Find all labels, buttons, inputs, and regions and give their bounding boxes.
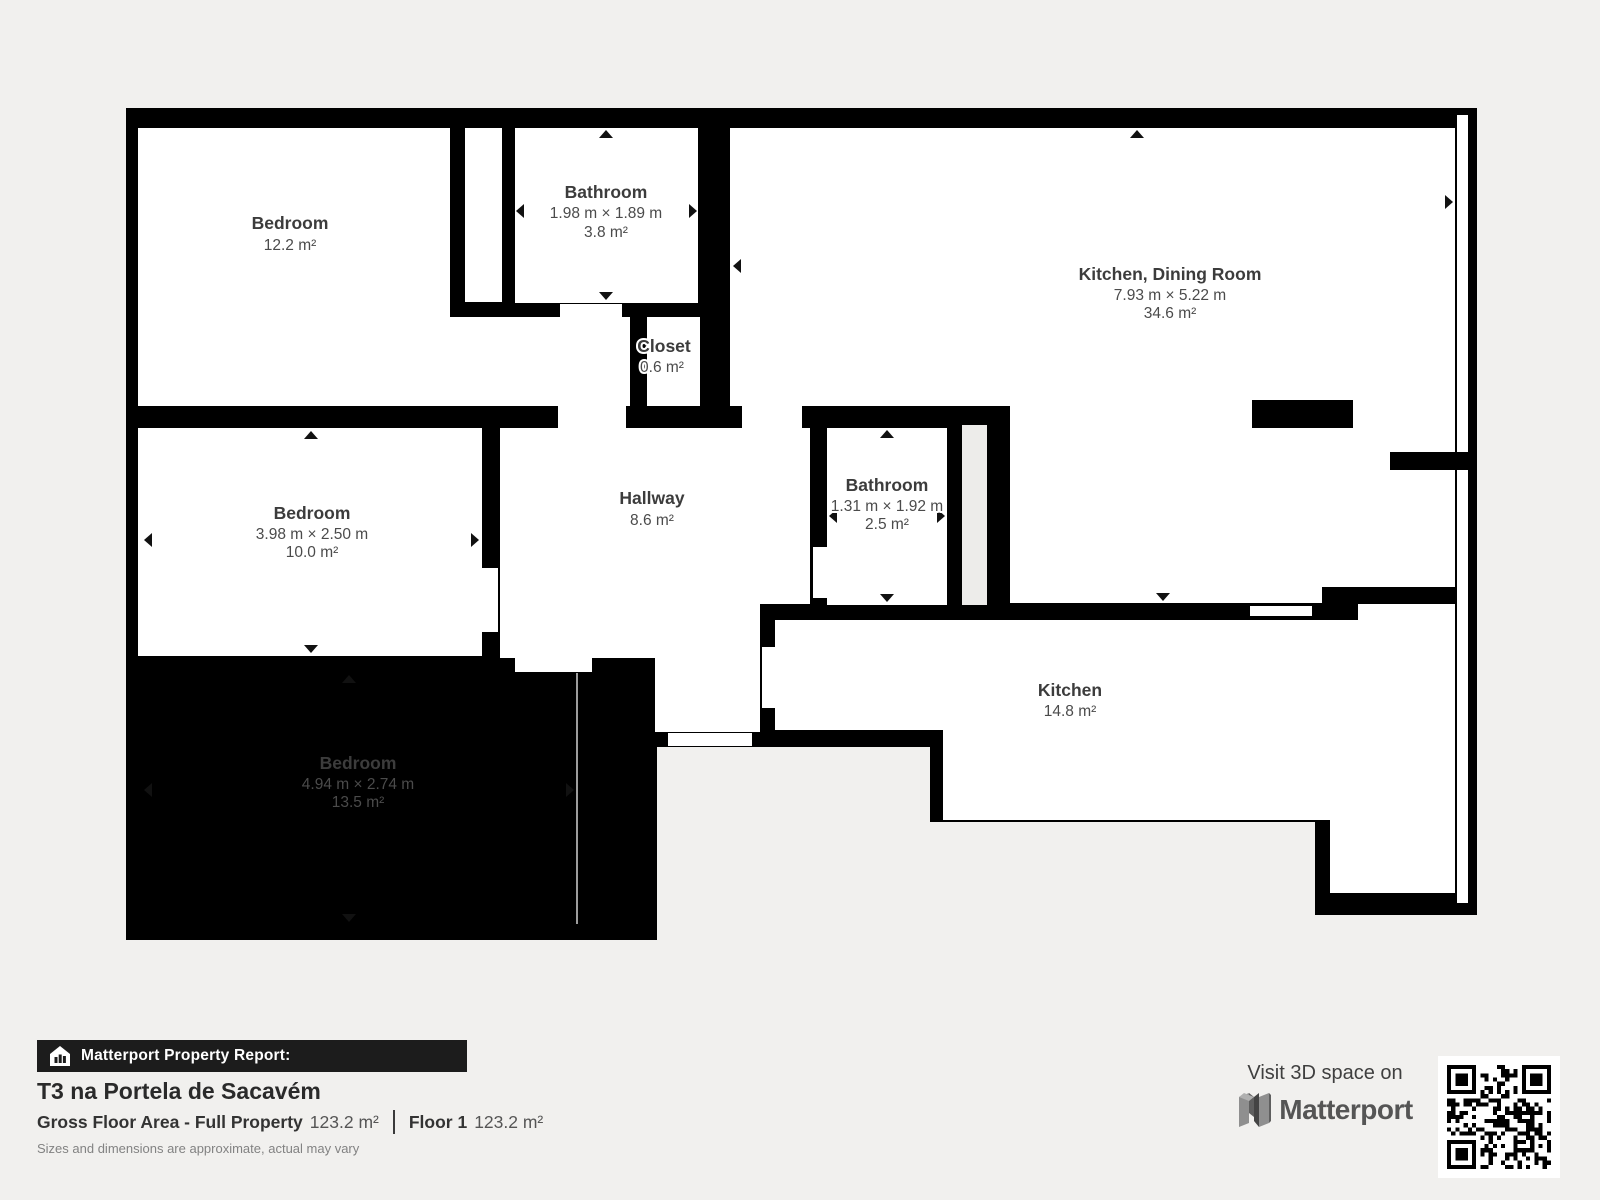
property-title: T3 na Portela de Sacavém [37,1078,321,1105]
qr-code [1438,1056,1560,1178]
window-right-upper [1457,115,1468,452]
room-dims: 3.98 m × 2.50 m [256,526,368,543]
matterport-logo-icon [1237,1091,1271,1129]
gfa-value: 123.2 m² [310,1112,379,1133]
room-label: Kitchen [1038,680,1102,700]
room-kitchen [775,604,1455,893]
shaft [962,425,987,605]
room-dims: 4.94 m × 2.74 m [302,776,414,793]
room-dims: 7.93 m × 5.22 m [1114,287,1226,304]
room-area: 12.2 m² [264,237,317,254]
matterport-wordmark: Matterport [1279,1094,1412,1126]
door-hallway-dining [742,406,802,428]
floor-plan: Bedroom 12.2 m² Bathroom 1.98 m × 1.89 m… [0,0,1600,1010]
report-header-bar: Matterport Property Report: [37,1040,467,1072]
room-label: Bedroom [252,213,329,233]
room-label: Kitchen, Dining Room [1079,264,1262,284]
room-area: 34.6 m² [1144,305,1197,322]
window-right-lower [1457,470,1468,903]
vestibule [450,317,630,406]
divider [393,1110,395,1134]
room-bedroom-1 [138,128,450,406]
wall-stub-right [1390,452,1457,470]
room-label: Bathroom [565,182,648,202]
matterport-link: Visit 3D space on Matterport [1180,1062,1470,1129]
door-bathroom-1 [560,304,622,317]
front-door [668,733,752,746]
room-area: 14.8 m² [1044,703,1097,720]
floor-value: 123.2 m² [474,1112,543,1133]
house-chart-icon [49,1045,71,1067]
room-label: Bedroom [274,503,351,523]
duct-strip [465,128,502,302]
room-area: 3.8 m² [584,224,628,241]
door-bathroom-2 [813,547,827,598]
gfa-label: Gross Floor Area - Full Property [37,1112,303,1133]
door-vestibule-hallway [558,406,626,428]
room-label: Bathroom [846,475,929,495]
room-dims: 1.31 m × 1.92 m [831,498,943,515]
door-hallway-kitchen [762,647,775,708]
room-area: 10.0 m² [286,544,339,561]
visit-text: Visit 3D space on [1180,1062,1470,1085]
room-label: Hallway [619,488,684,508]
floor-area-line: Gross Floor Area - Full Property 123.2 m… [37,1110,543,1134]
room-dims: 1.98 m × 1.89 m [550,205,662,222]
door-bedroom-3 [515,658,592,672]
room-label: Closet [637,336,691,356]
door-bedroom-2 [482,568,498,632]
room-label: Bedroom [320,753,397,773]
room-area: 0.6 m² [640,359,684,376]
report-bar-label: Matterport Property Report: [81,1047,291,1065]
window-kitchen-top [1250,606,1312,616]
disclaimer-text: Sizes and dimensions are approximate, ac… [37,1141,359,1156]
floor-label: Floor 1 [409,1112,467,1133]
room-area: 8.6 m² [630,512,674,529]
room-area: 2.5 m² [865,516,909,533]
counter-block [1252,400,1353,428]
room-area: 13.5 m² [332,794,385,811]
